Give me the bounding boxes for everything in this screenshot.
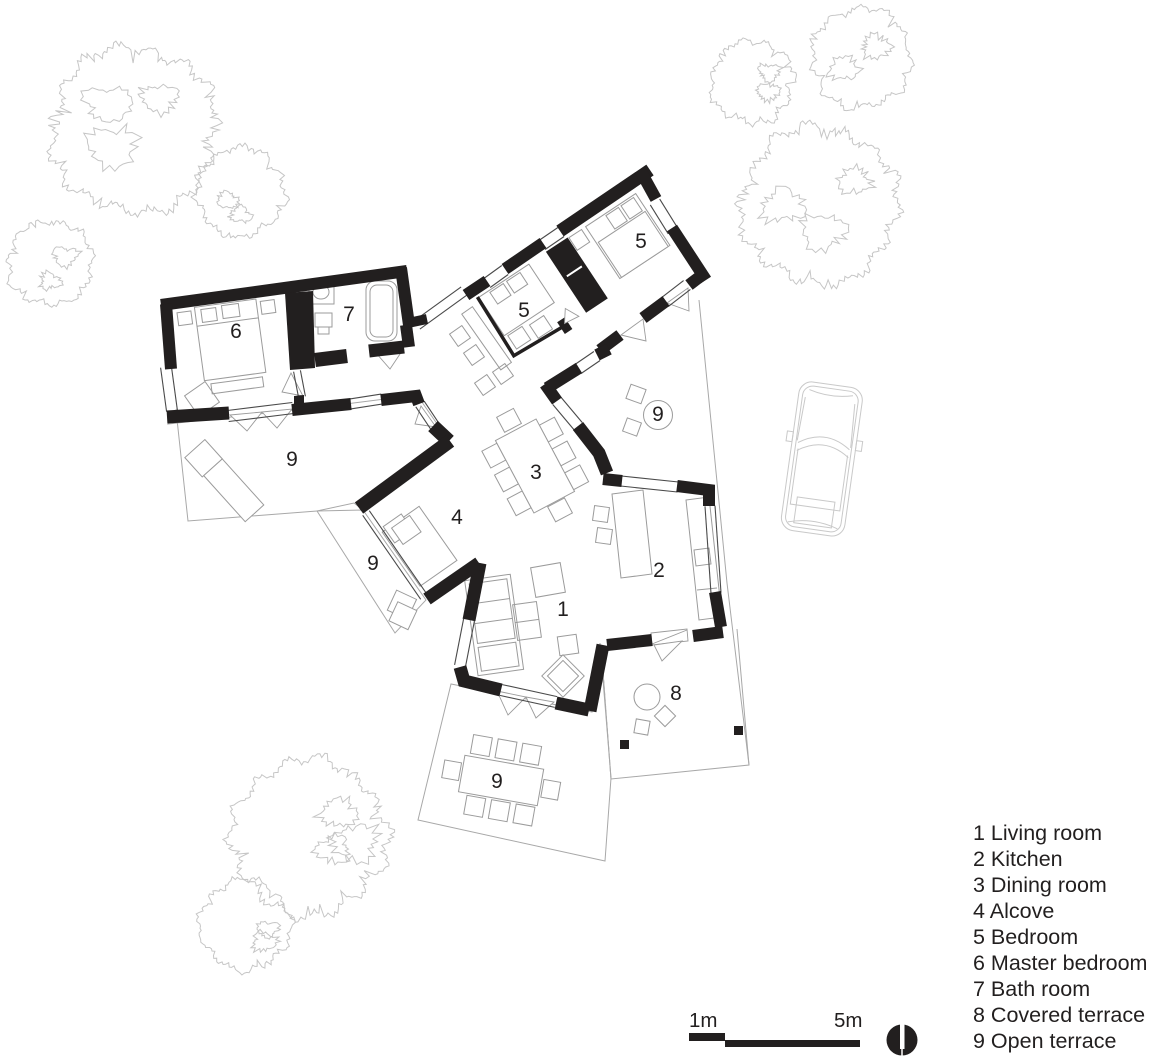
- svg-text:9: 9: [652, 403, 664, 426]
- svg-text:8: 8: [670, 682, 682, 705]
- svg-text:4 Alcove: 4 Alcove: [973, 899, 1054, 923]
- svg-text:9: 9: [491, 770, 503, 793]
- svg-text:1 Living room: 1 Living room: [973, 821, 1102, 845]
- svg-text:5m: 5m: [834, 1009, 862, 1032]
- svg-text:6: 6: [230, 320, 242, 343]
- svg-text:6 Master bedroom: 6 Master bedroom: [973, 951, 1147, 975]
- svg-text:2: 2: [653, 559, 665, 582]
- svg-text:5: 5: [518, 299, 530, 322]
- svg-text:9: 9: [286, 448, 298, 471]
- svg-text:1m: 1m: [689, 1009, 717, 1032]
- svg-text:7 Bath room: 7 Bath room: [973, 977, 1090, 1001]
- svg-text:3: 3: [530, 461, 542, 484]
- svg-text:4: 4: [451, 506, 463, 529]
- svg-text:5 Bedroom: 5 Bedroom: [973, 925, 1078, 949]
- svg-text:2 Kitchen: 2 Kitchen: [973, 847, 1063, 871]
- svg-text:9 Open terrace: 9 Open terrace: [973, 1029, 1116, 1053]
- svg-text:7: 7: [343, 303, 355, 326]
- svg-text:3 Dining room: 3 Dining room: [973, 873, 1107, 897]
- svg-text:5: 5: [635, 230, 647, 253]
- svg-text:1: 1: [557, 598, 569, 621]
- svg-text:9: 9: [367, 552, 379, 575]
- svg-text:8 Covered terrace: 8 Covered terrace: [973, 1003, 1145, 1027]
